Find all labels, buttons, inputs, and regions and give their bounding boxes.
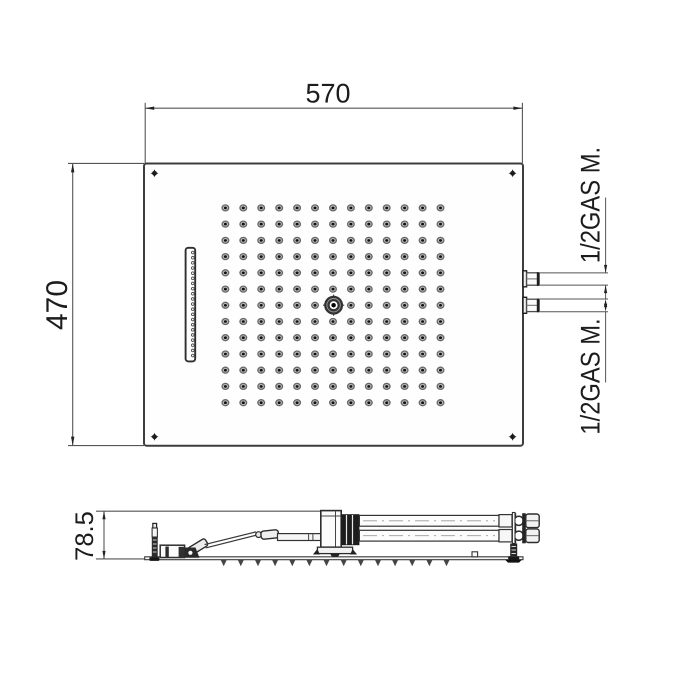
svg-text:1/2GAS M.: 1/2GAS M. [576,147,606,263]
svg-text:1/2GAS M.: 1/2GAS M. [576,318,606,434]
svg-text:470: 470 [41,280,74,330]
svg-text:78.5: 78.5 [71,511,99,561]
svg-text:570: 570 [305,79,350,109]
